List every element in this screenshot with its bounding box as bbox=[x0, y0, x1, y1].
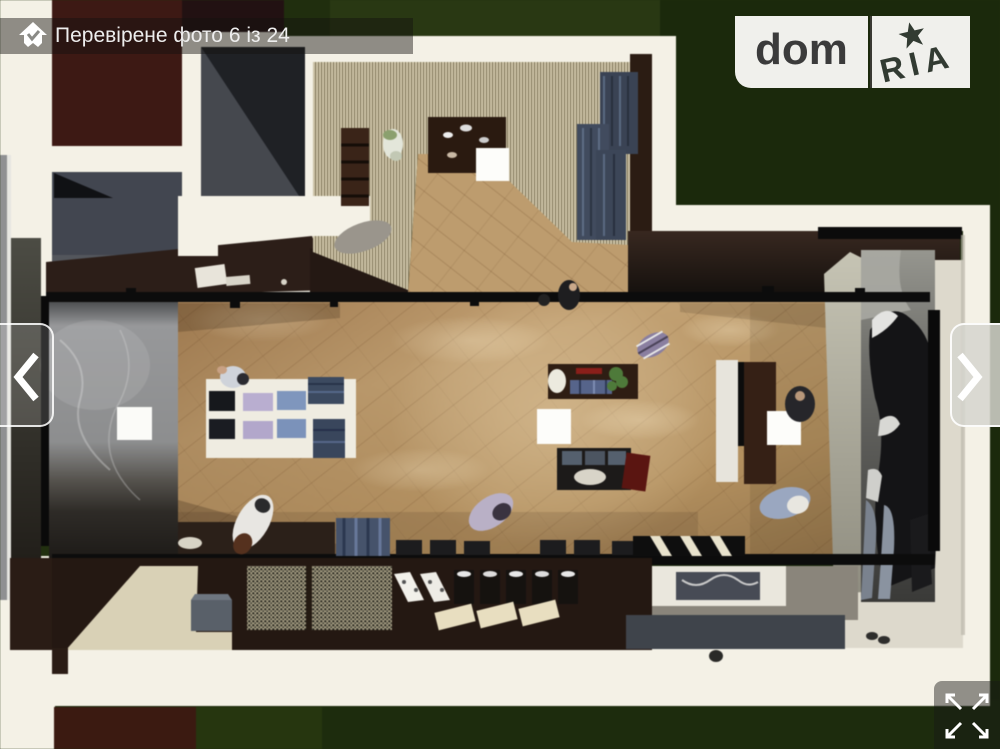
svg-text:RIA: RIA bbox=[876, 37, 957, 88]
